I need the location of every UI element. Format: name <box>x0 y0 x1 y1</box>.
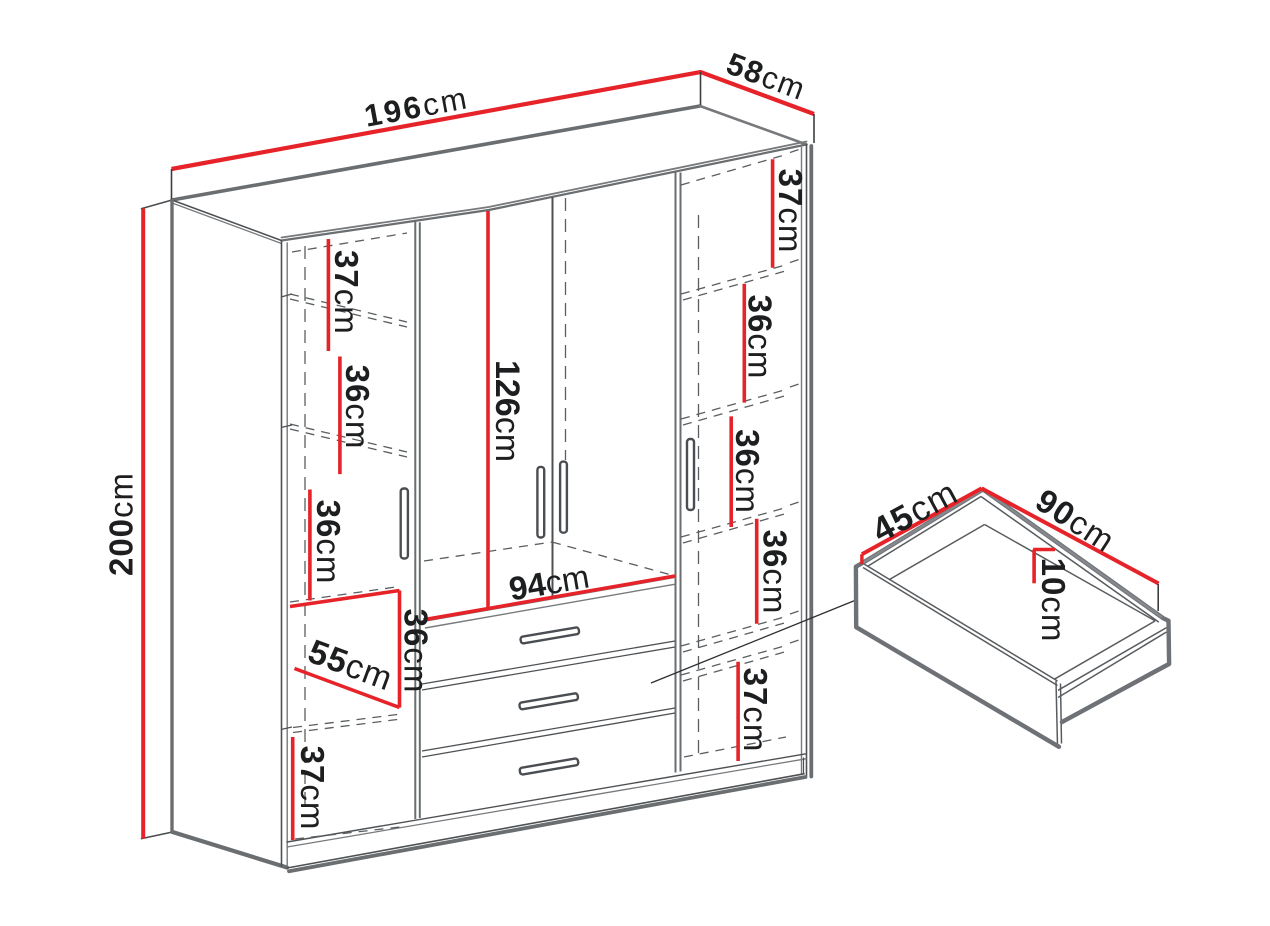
svg-text:36cm: 36cm <box>339 365 376 450</box>
svg-text:36cm: 36cm <box>398 609 435 694</box>
svg-text:36cm: 36cm <box>310 500 347 585</box>
svg-text:36cm: 36cm <box>757 530 794 615</box>
svg-text:200cm: 200cm <box>102 472 139 576</box>
svg-text:36cm: 36cm <box>742 295 779 380</box>
svg-text:37cm: 37cm <box>773 169 810 254</box>
svg-text:37cm: 37cm <box>295 746 332 831</box>
svg-text:37cm: 37cm <box>329 250 366 335</box>
svg-text:126cm: 126cm <box>488 360 526 462</box>
svg-text:10cm: 10cm <box>1036 558 1073 643</box>
svg-text:37cm: 37cm <box>738 668 775 753</box>
svg-text:36cm: 36cm <box>730 429 767 514</box>
